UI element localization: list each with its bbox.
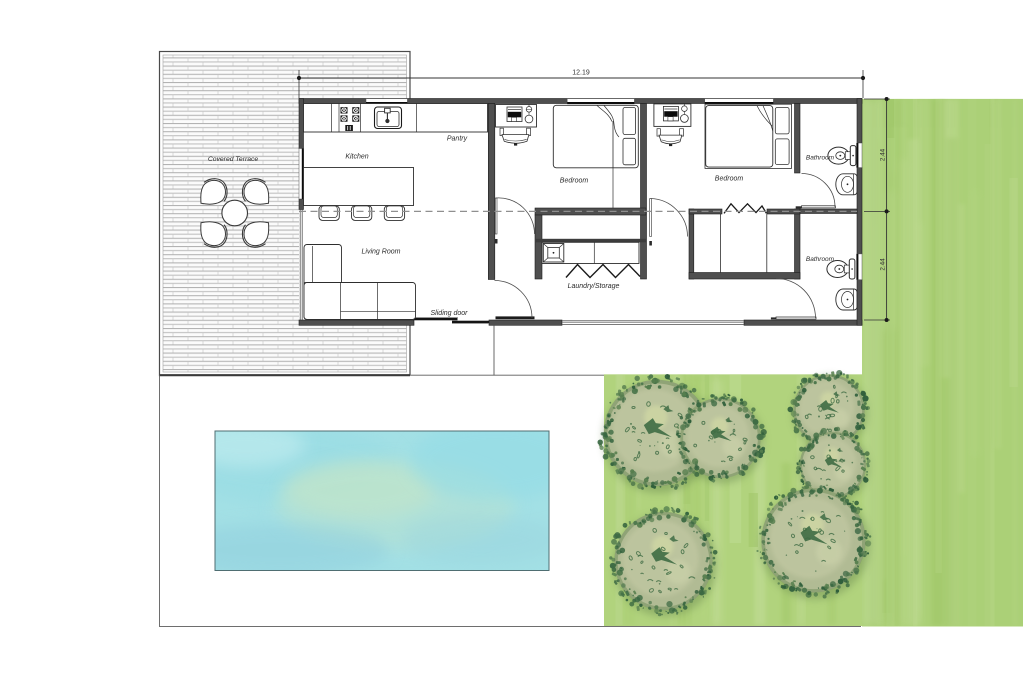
- svg-text:Pantry: Pantry: [447, 136, 468, 143]
- svg-text:Bedroom: Bedroom: [560, 178, 589, 185]
- svg-text:Living Room: Living Room: [362, 249, 401, 256]
- svg-text:Kitchen: Kitchen: [345, 154, 368, 161]
- svg-text:Bathroom: Bathroom: [806, 155, 835, 162]
- svg-text:Bathroom: Bathroom: [806, 256, 835, 263]
- svg-text:Covered Terrace: Covered Terrace: [208, 156, 259, 163]
- svg-text:2.44: 2.44: [880, 148, 887, 161]
- svg-text:12.19: 12.19: [572, 70, 590, 77]
- svg-text:Laundry/Storage: Laundry/Storage: [568, 283, 620, 290]
- svg-text:Sliding door: Sliding door: [431, 310, 469, 317]
- svg-text:2.44: 2.44: [880, 258, 887, 271]
- svg-text:Bedroom: Bedroom: [715, 176, 744, 183]
